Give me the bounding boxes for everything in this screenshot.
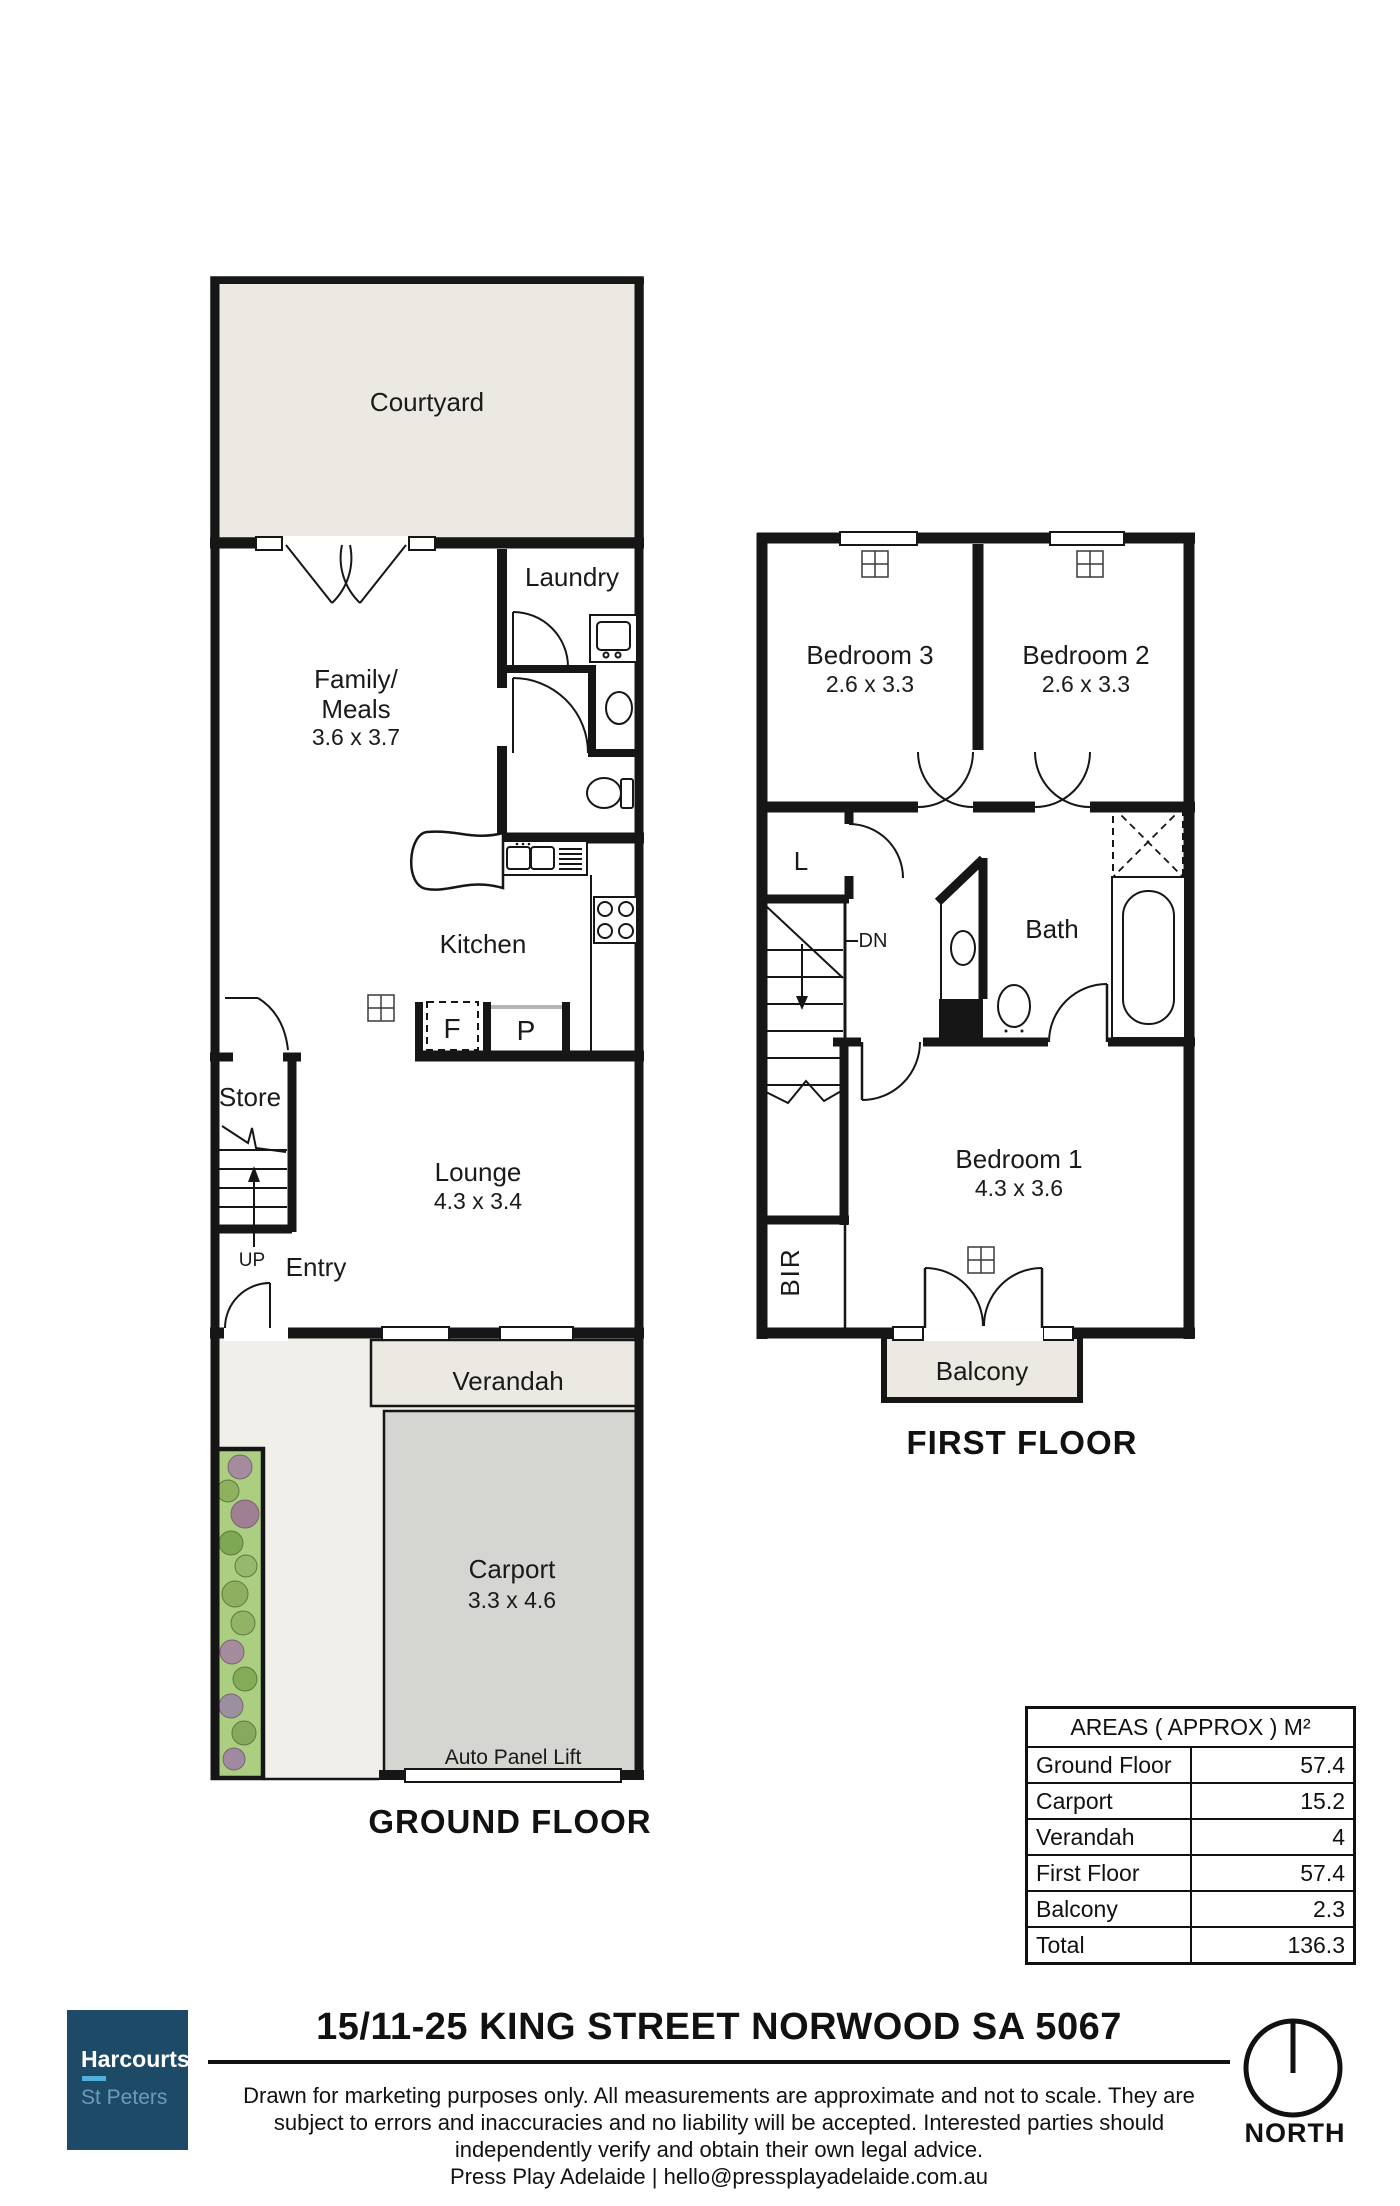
ground-floor-caption: GROUND FLOOR — [335, 1803, 685, 1841]
harcourts-logo: Harcourts St Peters — [67, 2010, 188, 2150]
bathtub-icon — [1112, 877, 1185, 1038]
disclaimer-line: Drawn for marketing purposes only. All m… — [208, 2082, 1230, 2109]
bedroom2-door — [1035, 752, 1090, 807]
fridge-label: F — [443, 1013, 460, 1044]
area-value: 136.3 — [1191, 1927, 1355, 1964]
north-compass-icon — [1235, 2005, 1355, 2135]
cooktop-icon — [594, 897, 637, 943]
bath-label: Bath — [1025, 914, 1079, 944]
area-value: 57.4 — [1191, 1855, 1355, 1891]
island-bench — [411, 832, 503, 890]
basin-icon — [606, 692, 632, 724]
area-label: Balcony — [1027, 1891, 1191, 1927]
area-label: First Floor — [1027, 1855, 1191, 1891]
table-row: Balcony 2.3 — [1027, 1891, 1355, 1927]
entry-door — [225, 1283, 270, 1328]
bedroom1-door — [862, 1042, 920, 1100]
bedroom3-label: Bedroom 3 — [806, 640, 933, 670]
balcony-label: Balcony — [936, 1356, 1029, 1386]
basin-icon — [951, 931, 975, 965]
up-label: UP — [239, 1250, 265, 1271]
toilet-icon — [587, 778, 633, 808]
north-label: NORTH — [1235, 2118, 1355, 2149]
entry-label: Entry — [286, 1252, 347, 1282]
family-label-2: Meals — [321, 694, 390, 724]
carport-label: Carport — [469, 1554, 556, 1584]
table-row: Verandah 4 — [1027, 1819, 1355, 1855]
garage-door — [405, 1769, 621, 1782]
area-value: 15.2 — [1191, 1783, 1355, 1819]
address-title: 15/11-25 KING STREET NORWOOD SA 5067 — [208, 2006, 1230, 2049]
window-icon — [368, 995, 394, 1021]
balcony-french-doors — [925, 1268, 1042, 1328]
bedroom3-door — [918, 752, 973, 807]
table-row: First Floor 57.4 — [1027, 1855, 1355, 1891]
bedroom2-dims: 2.6 x 3.3 — [1042, 671, 1130, 697]
dn-label: DN — [859, 930, 888, 952]
title-divider — [208, 2060, 1230, 2064]
laundry-label: Laundry — [525, 562, 619, 592]
bir-label: BIR — [775, 1247, 805, 1296]
floorplan-page: { "colors":{ "wall":"#161616","courtyard… — [0, 0, 1400, 2206]
linen-label: L — [794, 846, 808, 876]
area-label: Ground Floor — [1027, 1747, 1191, 1783]
area-value: 4 — [1191, 1819, 1355, 1855]
courtyard-label: Courtyard — [370, 387, 484, 417]
lounge-dims: 4.3 x 3.4 — [434, 1188, 522, 1214]
contact-line: Press Play Adelaide | hello@pressplayade… — [208, 2163, 1230, 2190]
area-label: Total — [1027, 1927, 1191, 1964]
wc-door — [513, 678, 588, 753]
ground-floor-plan: Courtyard Family/ Meals 3.6 x 3.7 Laundr… — [200, 260, 660, 1790]
auto-panel-lift-label: Auto Panel Lift — [445, 1746, 582, 1769]
bedroom2-label: Bedroom 2 — [1022, 640, 1149, 670]
bedroom3-dims: 2.6 x 3.3 — [826, 671, 914, 697]
logo-agency-name: Harcourts — [81, 2046, 190, 2073]
areas-table-header-row: AREAS ( APPROX ) M² — [1027, 1708, 1355, 1748]
disclaimer-text: Drawn for marketing purposes only. All m… — [208, 2082, 1230, 2190]
carport-dims: 3.3 x 4.6 — [468, 1587, 556, 1613]
kitchen-sink-icon — [502, 841, 587, 875]
area-label: Carport — [1027, 1783, 1191, 1819]
shower-icon — [1113, 807, 1183, 877]
washing-machine-icon — [590, 615, 637, 662]
areas-table-header: AREAS ( APPROX ) M² — [1027, 1708, 1355, 1748]
disclaimer-line: independently verify and obtain their ow… — [208, 2136, 1230, 2163]
store-door — [225, 998, 288, 1050]
kitchen-label: Kitchen — [440, 929, 527, 959]
verandah-label: Verandah — [452, 1366, 563, 1396]
laundry-door — [513, 612, 568, 667]
store-label: Store — [219, 1082, 281, 1112]
logo-accent-bar — [82, 2076, 106, 2081]
wc-wall-block — [939, 999, 983, 1042]
linen-door — [849, 824, 903, 878]
areas-table: AREAS ( APPROX ) M² Ground Floor 57.4 Ca… — [1025, 1706, 1356, 1965]
area-value: 57.4 — [1191, 1747, 1355, 1783]
bath-door — [1049, 984, 1107, 1042]
table-row: Carport 15.2 — [1027, 1783, 1355, 1819]
family-dims: 3.6 x 3.7 — [312, 724, 400, 750]
lounge-label: Lounge — [435, 1157, 522, 1187]
area-label: Verandah — [1027, 1819, 1191, 1855]
area-value: 2.3 — [1191, 1891, 1355, 1927]
courtyard-double-door — [286, 545, 406, 603]
first-floor-plan: Bedroom 3 2.6 x 3.3 Bedroom 2 2.6 x 3.3 … — [745, 515, 1205, 1465]
store-hooks — [222, 1126, 286, 1152]
pantry-label: P — [517, 1015, 536, 1046]
table-row: Total 136.3 — [1027, 1927, 1355, 1964]
bedroom1-label: Bedroom 1 — [955, 1144, 1082, 1174]
family-label-1: Family/ — [314, 664, 399, 694]
bedroom1-dims: 4.3 x 3.6 — [975, 1175, 1063, 1201]
garden-bed — [213, 1449, 263, 1778]
toilet-icon — [998, 985, 1030, 1033]
table-row: Ground Floor 57.4 — [1027, 1747, 1355, 1783]
logo-agency-branch: St Peters — [81, 2086, 167, 2110]
disclaimer-line: subject to errors and inaccuracies and n… — [208, 2109, 1230, 2136]
first-floor-caption: FIRST FLOOR — [847, 1424, 1197, 1462]
